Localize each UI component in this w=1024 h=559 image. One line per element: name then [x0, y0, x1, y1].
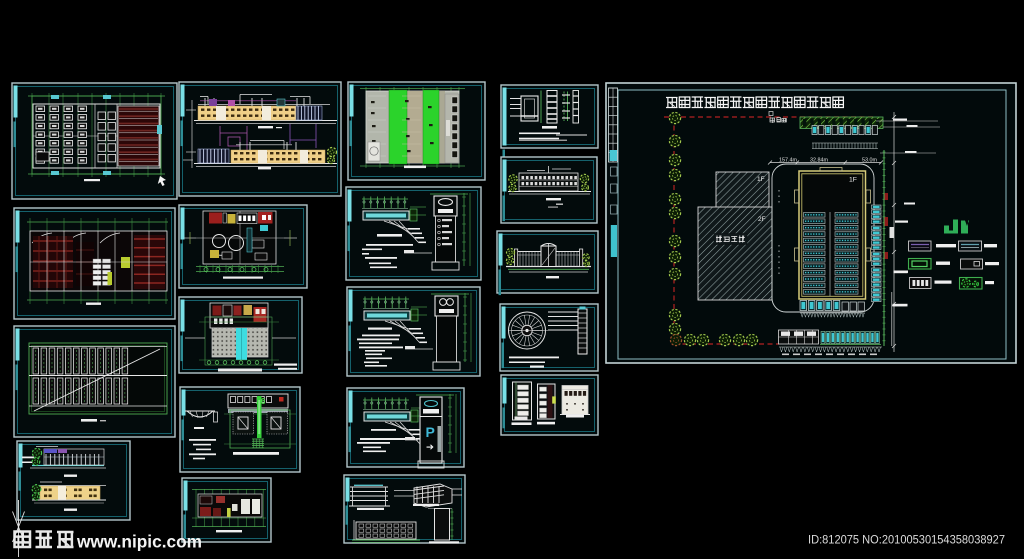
svg-text:2F: 2F [758, 216, 766, 223]
svg-text:32.84m: 32.84m [810, 158, 828, 164]
svg-text:53.0m: 53.0m [862, 158, 877, 164]
svg-text:P: P [426, 424, 435, 440]
svg-text:157.4m: 157.4m [779, 158, 797, 164]
svg-text:www.nipic.com: www.nipic.com [76, 532, 202, 552]
svg-text:ID:812075 NO:20100530154358038: ID:812075 NO:20100530154358038927 [808, 533, 1005, 547]
svg-text:1F: 1F [849, 177, 857, 184]
svg-text:1F: 1F [757, 176, 765, 183]
svg-text:➔: ➔ [426, 442, 434, 453]
